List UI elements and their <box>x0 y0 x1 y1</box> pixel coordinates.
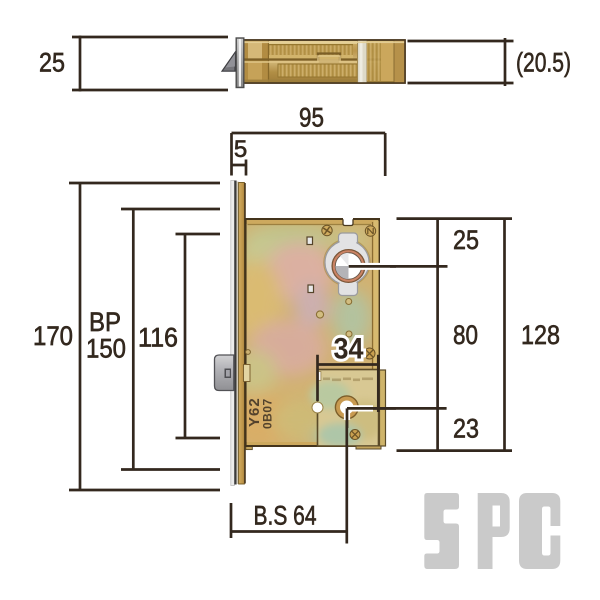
svg-text:5: 5 <box>234 136 247 163</box>
svg-text:(20.5): (20.5) <box>516 48 571 78</box>
svg-text:34: 34 <box>334 333 364 366</box>
svg-text:150: 150 <box>86 334 126 364</box>
svg-text:B.S 64: B.S 64 <box>254 501 317 531</box>
svg-text:128: 128 <box>521 320 560 350</box>
svg-text:116: 116 <box>138 323 178 353</box>
svg-text:23: 23 <box>453 414 479 444</box>
svg-text:25: 25 <box>453 225 479 255</box>
svg-text:80: 80 <box>453 320 478 350</box>
svg-text:170: 170 <box>33 321 73 351</box>
svg-text:95: 95 <box>299 103 324 133</box>
svg-text:0B07: 0B07 <box>261 398 275 429</box>
svg-text:25: 25 <box>39 48 65 78</box>
svg-text:BP: BP <box>89 307 121 337</box>
